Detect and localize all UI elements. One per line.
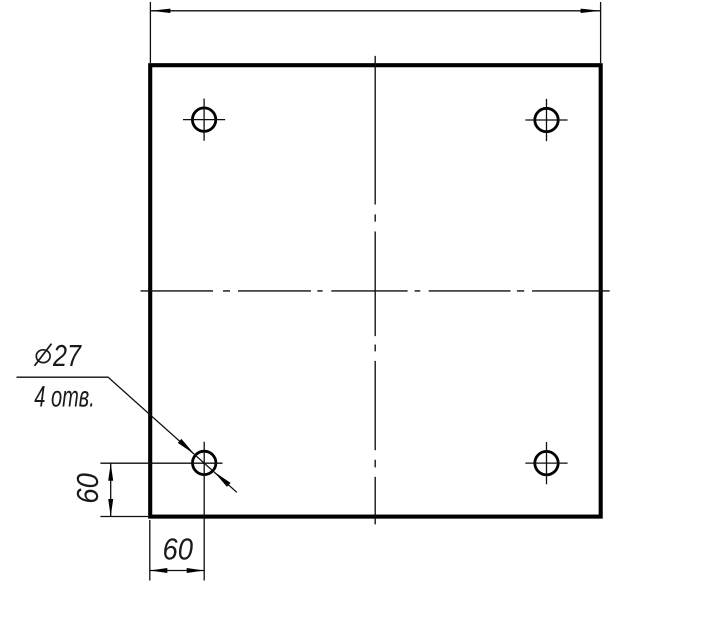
svg-text:27: 27 [52, 338, 82, 373]
svg-text:4 отв.: 4 отв. [34, 380, 95, 413]
svg-text:60: 60 [163, 531, 194, 566]
svg-text:60: 60 [70, 473, 105, 504]
